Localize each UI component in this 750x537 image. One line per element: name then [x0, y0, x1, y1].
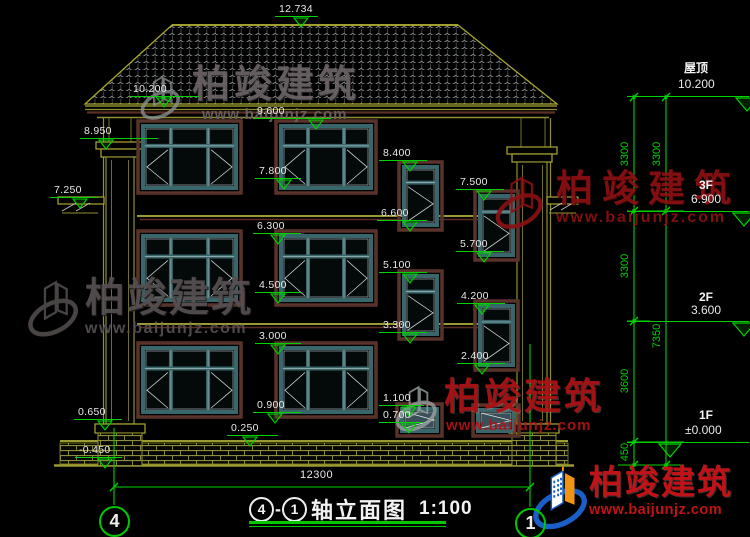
floor-label-3F: 3F	[699, 179, 713, 191]
watermark: 柏竣建筑 www.baijunjz.com	[444, 378, 604, 433]
level-triangle-icon	[402, 161, 418, 172]
title-axis-start-circle: 4	[249, 497, 274, 522]
level-label-win1f_bottom: 0.900	[257, 400, 285, 411]
level-triangle-icon	[402, 221, 418, 232]
level-triangle-icon	[293, 17, 309, 28]
axis-bubble-4: 4	[99, 506, 130, 537]
watermark: 柏竣建筑 www.baijunjz.com	[85, 278, 253, 337]
level-triangle-icon	[732, 322, 750, 337]
title-dash: -	[275, 499, 281, 520]
vertical-dim-label: 3300	[619, 254, 631, 278]
window	[276, 231, 376, 305]
level-label-small_win_bottom: 0.700	[383, 410, 411, 421]
level-triangle-icon	[270, 344, 286, 355]
overall-width-dim: 12300	[300, 470, 333, 481]
title-underline	[249, 526, 446, 527]
level-triangle-icon	[276, 179, 292, 190]
level-line-capital	[80, 138, 158, 139]
level-triangle-icon	[735, 97, 750, 112]
title-scale: 1:100	[419, 498, 473, 520]
level-label-stair_c_bottom: 3.300	[383, 320, 411, 331]
level-label-ledge_left: 7.250	[54, 185, 82, 196]
window	[276, 343, 376, 417]
level-label-ground: -0.450	[79, 445, 111, 456]
floor-level-value: ±0.000	[685, 424, 722, 436]
level-triangle-icon	[156, 97, 172, 108]
floor-level-line	[627, 442, 749, 443]
brand-logo-icon	[24, 276, 84, 342]
floor-label-屋顶: 屋顶	[684, 62, 708, 74]
brand-logo-icon	[492, 172, 548, 234]
level-triangle-icon	[97, 458, 113, 469]
level-label-win2f_bottom: 4.500	[259, 280, 287, 291]
watermark: 柏竣建筑 www.baijunjz.com	[589, 466, 733, 518]
level-triangle-icon	[476, 190, 492, 201]
level-label-stair_a_top: 8.400	[383, 148, 411, 159]
level-triangle-icon	[97, 420, 113, 431]
level-triangle-icon	[474, 364, 490, 375]
level-triangle-icon	[402, 333, 418, 344]
level-triangle-icon	[308, 119, 324, 130]
level-label-win2f_top: 6.300	[257, 221, 285, 232]
window	[138, 121, 241, 193]
title-axis-end-circle: 1	[282, 497, 307, 522]
level-triangle-icon	[98, 139, 114, 150]
vertical-dim-label: 7350	[651, 324, 663, 348]
vertical-dim-label: 450	[619, 443, 631, 461]
floor-level-line	[627, 211, 749, 212]
level-label-roof_eave: 10.200	[133, 84, 167, 95]
level-triangle-icon	[401, 423, 417, 434]
level-label-base_ledge: 0.650	[78, 407, 106, 418]
cad-elevation-screen: 33003300360045033007350 柏竣建筑 www.baijunj…	[0, 0, 750, 537]
level-label-stair_c_top: 5.100	[383, 260, 411, 271]
level-label-win3f_bottom: 7.800	[259, 166, 287, 177]
floor-level-line	[627, 96, 749, 97]
window	[138, 343, 241, 417]
level-triangle-icon	[270, 293, 286, 304]
level-label-stair_d_bottom: 2.400	[461, 351, 489, 362]
vertical-dim-label: 3600	[619, 369, 631, 393]
level-triangle-icon	[658, 443, 682, 458]
level-label-ridge: 12.734	[279, 4, 313, 15]
floor-level-value: 6.900	[691, 193, 721, 205]
level-triangle-icon	[72, 198, 88, 209]
level-label-stair_d_top: 4.200	[461, 291, 489, 302]
floor-level-line	[627, 321, 749, 322]
floor-label-2F: 2F	[699, 291, 713, 303]
level-label-stair_a_bottom: 6.600	[381, 208, 409, 219]
level-label-plinth_top: 0.250	[231, 423, 259, 434]
level-label-win1f_top: 3.000	[259, 331, 287, 342]
level-triangle-icon	[474, 304, 490, 315]
level-triangle-icon	[270, 234, 286, 245]
vertical-dim-label: 3300	[619, 142, 631, 166]
floor-level-value: 3.600	[691, 304, 721, 316]
floor-label-1F: 1F	[699, 409, 713, 421]
level-label-small_win_top: 1.100	[383, 393, 411, 404]
level-label-capital: 8.950	[84, 126, 112, 137]
axis-bubble-1: 1	[515, 508, 546, 537]
level-triangle-icon	[476, 252, 492, 263]
vertical-dim-label: 3300	[651, 142, 663, 166]
title-underline	[249, 521, 446, 524]
level-triangle-icon	[732, 212, 750, 227]
level-triangle-icon	[267, 413, 283, 424]
level-label-stair_b_top: 7.500	[460, 177, 488, 188]
level-label-stair_b_bottom: 5.700	[460, 239, 488, 250]
floor-level-value: 10.200	[678, 78, 715, 90]
level-triangle-icon	[402, 273, 418, 284]
level-label-win3f_top: 9.600	[257, 106, 285, 117]
level-triangle-icon	[242, 436, 258, 447]
